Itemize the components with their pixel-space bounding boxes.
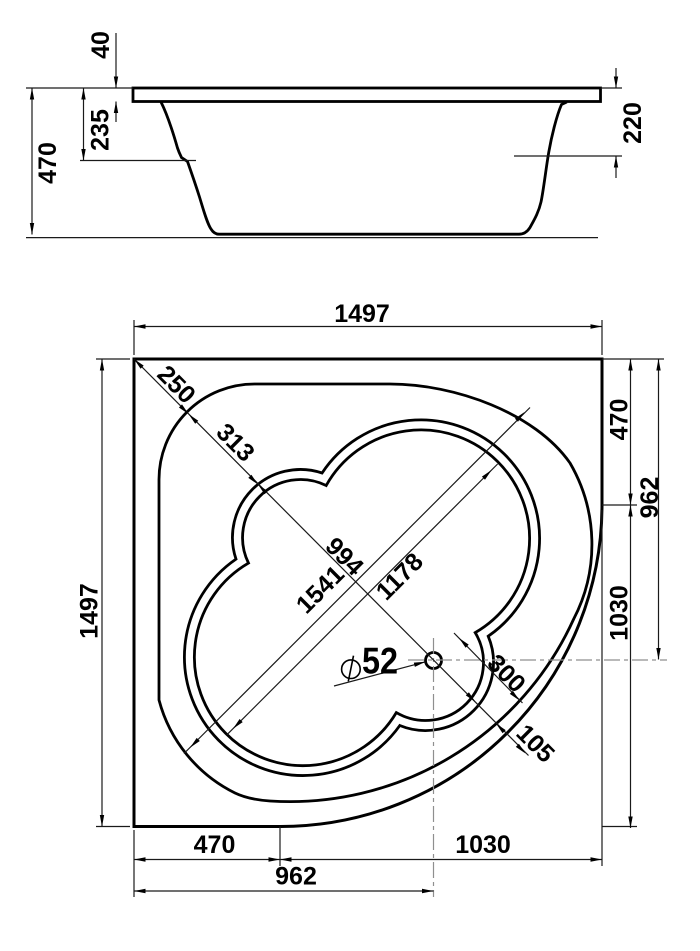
svg-text:250: 250 xyxy=(152,360,201,409)
svg-text:1178: 1178 xyxy=(371,548,429,606)
svg-text:470: 470 xyxy=(194,831,236,859)
svg-text:470: 470 xyxy=(606,399,634,441)
svg-text:1030: 1030 xyxy=(606,585,634,641)
svg-text:235: 235 xyxy=(87,109,115,151)
svg-text:300: 300 xyxy=(482,649,531,698)
svg-text:1497: 1497 xyxy=(334,300,390,328)
svg-text:313: 313 xyxy=(211,418,260,467)
svg-text:962: 962 xyxy=(275,863,317,891)
svg-text:40: 40 xyxy=(87,31,115,59)
svg-text:962: 962 xyxy=(636,477,664,519)
svg-text:220: 220 xyxy=(619,102,647,144)
svg-text:1030: 1030 xyxy=(455,831,511,859)
svg-text:470: 470 xyxy=(34,142,62,184)
svg-text:105: 105 xyxy=(511,719,560,768)
svg-text:52: 52 xyxy=(362,641,398,682)
svg-text:1497: 1497 xyxy=(76,583,104,639)
